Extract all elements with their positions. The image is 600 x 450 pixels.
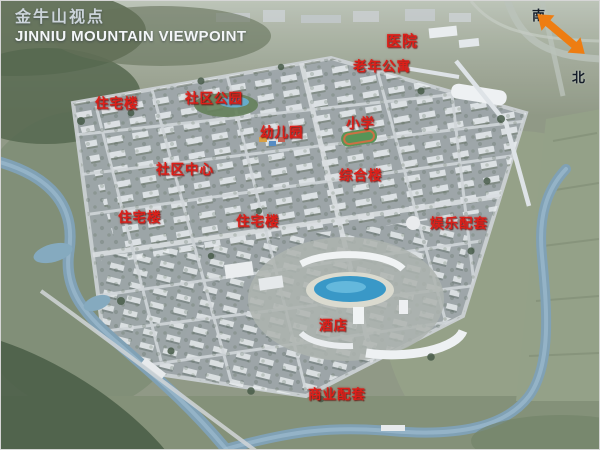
compass-north-label: 北 — [572, 67, 585, 86]
compass: 南 北 — [524, 1, 599, 96]
map-label-community-park: 社区公园 — [185, 87, 243, 107]
map-label-residential-1: 住宅楼 — [95, 92, 139, 112]
title-english: JINNIU MOUNTAIN VIEWPOINT — [15, 28, 246, 45]
map-label-residential-2: 住宅楼 — [118, 206, 162, 226]
map-label-community-center: 社区中心 — [156, 158, 214, 178]
viewpoint-title: 金牛山视点 JINNIU MOUNTAIN VIEWPOINT — [15, 3, 246, 45]
map-label-senior-apartments: 老年公寓 — [353, 55, 411, 75]
map-label-kindergarten: 幼儿园 — [260, 121, 304, 141]
map-label-entertainment-facilities: 娱乐配套 — [430, 212, 488, 232]
title-chinese: 金牛山视点 — [15, 3, 246, 27]
aerial-rendering-art — [1, 1, 600, 450]
aerial-masterplan-view: 金牛山视点 JINNIU MOUNTAIN VIEWPOINT 南 北 医院 老… — [0, 0, 600, 450]
compass-arrow-icon — [524, 3, 599, 73]
map-label-hospital: 医院 — [386, 30, 418, 51]
map-label-complex-building: 综合楼 — [339, 164, 383, 184]
map-label-residential-3: 住宅楼 — [236, 210, 280, 230]
map-label-hotel: 酒店 — [319, 314, 348, 334]
map-label-primary-school: 小学 — [346, 112, 375, 132]
map-label-commercial-facilities: 商业配套 — [308, 383, 366, 403]
